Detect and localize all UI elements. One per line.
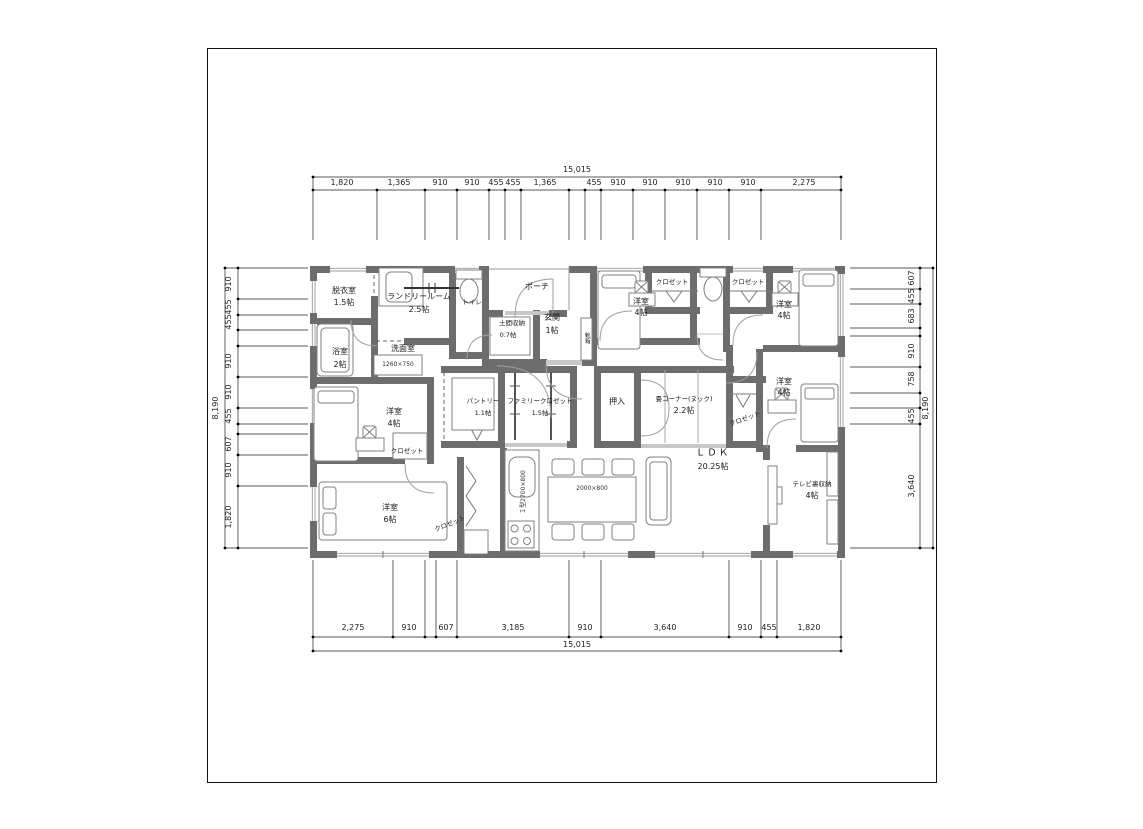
dim-left-0: 910 bbox=[225, 276, 233, 291]
room-label-bedroom-sw: 洋室 bbox=[382, 504, 398, 512]
tv-icon bbox=[768, 466, 782, 524]
dim-top-13: 2,275 bbox=[793, 179, 816, 187]
dim-bottom-3: 3,185 bbox=[502, 624, 525, 632]
dim-left-4: 910 bbox=[225, 384, 233, 399]
dim-top-9: 910 bbox=[642, 179, 657, 187]
dim-left-3: 910 bbox=[225, 353, 233, 368]
storage-box-icon bbox=[464, 530, 488, 554]
kitchen-size-label: Ｉ型2700×800 bbox=[521, 470, 527, 514]
dim-top-10: 910 bbox=[675, 179, 690, 187]
room-label-shoebox: 靴箱 bbox=[583, 333, 589, 344]
room-label-toilet: トイレ bbox=[462, 299, 482, 306]
dining-table-size-label: 2000×800 bbox=[576, 486, 608, 492]
dim-bottom-6: 910 bbox=[737, 624, 752, 632]
dim-top-8: 910 bbox=[610, 179, 625, 187]
room-size-laundry: 2.5帖 bbox=[409, 306, 430, 314]
dim-top-0: 1,820 bbox=[331, 179, 354, 187]
dim-right-4: 758 bbox=[908, 371, 916, 386]
room-label-oshiire: 押入 bbox=[609, 398, 625, 406]
room-label-ldk: ＬＤＫ bbox=[696, 448, 731, 458]
room-label-tv: テレビ裏収納 bbox=[793, 481, 832, 488]
dim-left-8: 1,820 bbox=[225, 506, 233, 529]
room-size-doma: 0.7帖 bbox=[500, 332, 517, 339]
dim-left-2: 455 bbox=[225, 314, 233, 329]
closet-label-1: クロゼット bbox=[656, 279, 689, 286]
dim-left-1: 455 bbox=[225, 299, 233, 314]
room-size-tatami: 2.2帖 bbox=[674, 407, 695, 415]
room-label-bedroom-w: 洋室 bbox=[386, 408, 402, 416]
dim-right-0: 607 bbox=[908, 270, 916, 285]
room-label-bedroom-n2: 洋室 bbox=[776, 301, 792, 309]
dim-top-3: 910 bbox=[464, 179, 479, 187]
room-size-bedroom-sw: 6帖 bbox=[383, 516, 396, 524]
room-size-bedroom-n2: 4帖 bbox=[777, 312, 790, 320]
room-label-pantry: パントリー bbox=[467, 398, 500, 405]
dim-top-1: 1,365 bbox=[388, 179, 411, 187]
room-size-bath: 2帖 bbox=[333, 361, 346, 369]
dim-right-3: 910 bbox=[908, 343, 916, 358]
dim-left-7: 910 bbox=[225, 462, 233, 477]
room-size-genkan: 1帖 bbox=[545, 327, 558, 335]
dim-top-4: 455 bbox=[488, 179, 503, 187]
dim-top-12: 910 bbox=[740, 179, 755, 187]
dim-left-5: 455 bbox=[225, 408, 233, 423]
room-label-tatami: 畳コーナー(ヌック) bbox=[655, 396, 712, 403]
dim-top-total: 15,015 bbox=[563, 166, 591, 174]
dim-bottom-total: 15,015 bbox=[563, 641, 591, 649]
dim-bottom-1: 910 bbox=[401, 624, 416, 632]
room-size-bedroom-w: 4帖 bbox=[387, 420, 400, 428]
dim-bottom-4: 910 bbox=[577, 624, 592, 632]
room-label-famiclo: ファミリークロゼット bbox=[508, 398, 573, 405]
sofa-icon bbox=[646, 457, 671, 525]
dim-bottom-7: 455 bbox=[761, 624, 776, 632]
room-label-senmen: 洗面室 bbox=[391, 345, 415, 353]
dim-right-5: 455 bbox=[908, 408, 916, 423]
dim-right-1: 455 bbox=[908, 288, 916, 303]
dim-bottom-0: 2,275 bbox=[342, 624, 365, 632]
room-size-bedroom-n1: 4帖 bbox=[634, 309, 647, 317]
room-size-tv: 4帖 bbox=[805, 492, 818, 500]
room-size-pantry: 1.1帖 bbox=[475, 410, 492, 417]
room-label-bedroom-e: 洋室 bbox=[776, 378, 792, 386]
room-size-famiclo: 1.5帖 bbox=[532, 410, 549, 417]
room-label-doma: 土間収納 bbox=[499, 320, 525, 327]
dim-bottom-2: 607 bbox=[438, 624, 453, 632]
dim-top-5: 455 bbox=[505, 179, 520, 187]
room-size-bedroom-e: 4帖 bbox=[777, 389, 790, 397]
dim-right-2: 683 bbox=[908, 308, 916, 323]
room-label-bedroom-n1: 洋室 bbox=[633, 298, 649, 306]
room-size-datsui: 1.5帖 bbox=[334, 299, 355, 307]
dim-right-total: 8,190 bbox=[922, 397, 930, 420]
closet-label-2: クロゼット bbox=[732, 279, 765, 286]
shelf2-icon bbox=[827, 500, 838, 544]
floor-plan-drawing bbox=[0, 0, 1143, 829]
floor-plan-page: 15,015 1,820 1,365 910 910 455 455 1,365… bbox=[0, 0, 1143, 829]
room-label-porch: ポーチ bbox=[525, 283, 549, 291]
room-label-datsui: 脱衣室 bbox=[332, 287, 356, 295]
shelf-icon bbox=[827, 452, 838, 496]
dining-table-icon bbox=[548, 459, 636, 540]
room-label-laundry: ランドリールーム bbox=[387, 293, 451, 301]
dim-top-7: 455 bbox=[586, 179, 601, 187]
toilet2-icon bbox=[700, 268, 726, 301]
room-size-ldk: 20.25帖 bbox=[698, 463, 729, 471]
vanity-size-label: 1260×750 bbox=[382, 362, 414, 368]
dim-bottom-5: 3,640 bbox=[654, 624, 677, 632]
room-label-bath: 浴室 bbox=[332, 348, 348, 356]
dim-left-total: 8,190 bbox=[212, 397, 220, 420]
dim-right-6: 3,640 bbox=[908, 475, 916, 498]
dim-top-11: 910 bbox=[707, 179, 722, 187]
room-label-genkan: 玄関 bbox=[544, 314, 560, 322]
dim-left-6: 607 bbox=[225, 436, 233, 451]
closet-label-3: クロゼット bbox=[391, 448, 424, 455]
dim-bottom-8: 1,820 bbox=[798, 624, 821, 632]
dim-top-2: 910 bbox=[432, 179, 447, 187]
dim-top-6: 1,365 bbox=[534, 179, 557, 187]
